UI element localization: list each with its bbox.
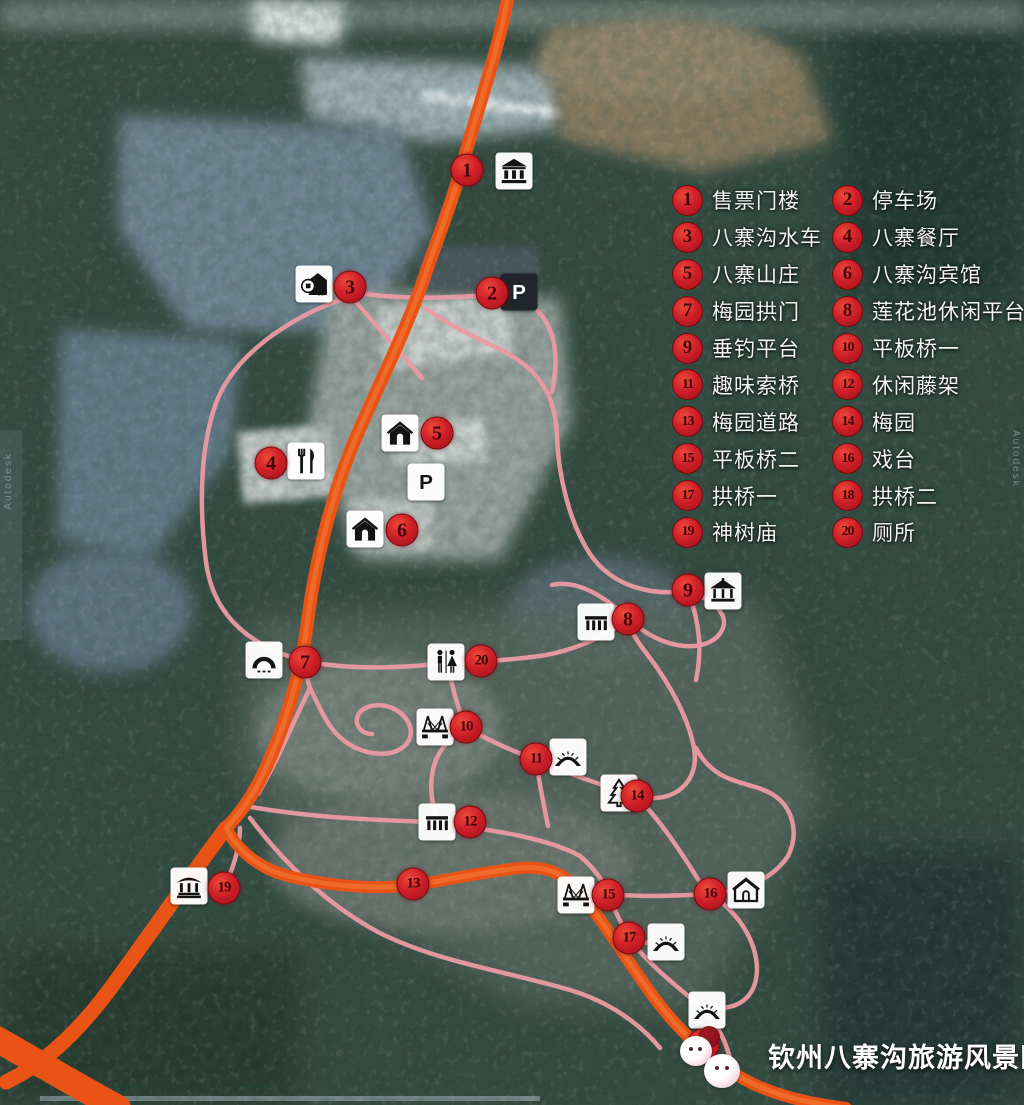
parking-light-icon: P [408, 464, 445, 501]
map-marker-number: 10 [460, 720, 473, 735]
legend-item-label: 八寨沟水车 [712, 222, 822, 252]
watermark-right: Autodesk [1010, 430, 1021, 488]
legend-item-label: 戏台 [872, 444, 916, 474]
legend-item-label: 休闲藤架 [872, 370, 960, 400]
map-marker-6: 6 [386, 514, 419, 547]
legend-item: 5八寨山庄 [672, 256, 824, 293]
map-marker-number: 7 [300, 652, 310, 672]
legend-item-number: 17 [672, 480, 703, 511]
pavilion-icon-glyph [708, 576, 739, 607]
house-icon-glyph [350, 514, 381, 545]
map-marker-20: 20 [465, 645, 498, 678]
map-marker-number: 8 [623, 609, 633, 629]
map-marker-number: 19 [218, 881, 231, 896]
legend-item-label: 售票门楼 [712, 185, 800, 215]
map-marker-number: 20 [475, 654, 488, 669]
temple-icon-glyph [174, 871, 205, 902]
legend-item-label: 八寨沟宾馆 [872, 259, 982, 289]
map-marker-13: 13 [397, 868, 430, 901]
map-marker-number: 13 [407, 877, 420, 892]
map-marker-8: 8 [612, 603, 645, 636]
legend-item-number: 18 [832, 480, 863, 511]
map-marker-3: 3 [334, 271, 367, 304]
legend-item-number: 7 [672, 296, 703, 327]
legend-item: 18拱桥二 [832, 477, 1024, 514]
legend-item: 1售票门楼 [672, 182, 824, 219]
house-icon-glyph [385, 418, 416, 449]
legend-item: 12休闲藤架 [832, 366, 1024, 403]
map-marker-number: 15 [602, 888, 615, 903]
legend-item-number: 11 [672, 369, 703, 400]
pavilion-icon [705, 573, 742, 610]
map-marker-number: 12 [464, 815, 477, 830]
gate-building-icon-glyph [499, 156, 530, 187]
legend-item-number: 19 [672, 517, 703, 548]
watermark-left: Autodesk [3, 452, 14, 510]
map-marker-4: 4 [255, 447, 288, 480]
legend-item: 16戏台 [832, 440, 1024, 477]
legend-item-number: 15 [672, 443, 703, 474]
arch-bridge-icon-glyph [692, 995, 723, 1026]
house-outline-icon [728, 872, 765, 909]
map-marker-number: 5 [432, 423, 442, 443]
legend-item-label: 趣味索桥 [712, 370, 800, 400]
legend-item-number: 4 [832, 222, 863, 253]
map-marker-5: 5 [421, 417, 454, 450]
legend-item-label: 拱桥二 [872, 481, 938, 511]
legend-item: 4八寨餐厅 [832, 219, 1024, 256]
map-marker-7: 7 [289, 646, 322, 679]
legend-item-label: 梅园道路 [712, 407, 800, 437]
legend-item: 17拱桥一 [672, 477, 824, 514]
legend-item: 7梅园拱门 [672, 293, 824, 330]
legend-item: 13梅园道路 [672, 403, 824, 440]
legend-item: 6八寨沟宾馆 [832, 256, 1024, 293]
legend-item-number: 9 [672, 333, 703, 364]
gate-building-icon [496, 153, 533, 190]
legend-item: 20厕所 [832, 514, 1024, 551]
restaurant-icon-glyph [291, 446, 322, 477]
map-marker-number: 4 [266, 453, 276, 473]
map-marker-15: 15 [592, 879, 625, 912]
legend-item-number: 16 [832, 443, 863, 474]
svg-text:P: P [512, 281, 526, 304]
arch-bridge-icon [648, 924, 685, 961]
mascot-figure [704, 1054, 740, 1088]
parking-light-icon-glyph: P [411, 467, 442, 498]
legend-item-label: 八寨餐厅 [872, 222, 960, 252]
map-marker-19: 19 [208, 872, 241, 905]
flat-bridge-icon-glyph [561, 880, 592, 911]
arch-bridge-icon [550, 739, 587, 776]
map-marker-16: 16 [694, 878, 727, 911]
legend-item-number: 1 [672, 185, 703, 216]
legend-item-number: 14 [832, 406, 863, 437]
map-marker-number: 14 [631, 789, 644, 804]
legend-item-number: 10 [832, 333, 863, 364]
map-marker-number: 16 [704, 887, 717, 902]
flat-bridge-icon-glyph [420, 712, 451, 743]
legend-item-number: 3 [672, 222, 703, 253]
map-marker-number: 17 [623, 931, 636, 946]
legend-item-label: 停车场 [872, 185, 938, 215]
platform-icon-glyph [581, 607, 612, 638]
platform-icon [578, 604, 615, 641]
water-wheel-icon-glyph [299, 269, 330, 300]
map-marker-number: 9 [683, 580, 693, 600]
legend-item-number: 6 [832, 259, 863, 290]
legend-item-label: 梅园拱门 [712, 296, 800, 326]
map-marker-17: 17 [613, 922, 646, 955]
legend-item-number: 5 [672, 259, 703, 290]
arch-bridge-icon-glyph [651, 927, 682, 958]
legend-item-label: 莲花池休闲平台 [872, 296, 1024, 326]
legend-item-label: 平板桥一 [872, 333, 960, 363]
flat-bridge-icon [417, 709, 454, 746]
map-marker-number: 2 [487, 283, 497, 303]
legend-item-number: 20 [832, 517, 863, 548]
legend-item-number: 13 [672, 406, 703, 437]
legend-item-label: 八寨山庄 [712, 259, 800, 289]
house-outline-icon-glyph [731, 875, 762, 906]
map-marker-10: 10 [450, 711, 483, 744]
map-marker-number: 1 [462, 160, 472, 180]
legend-item: 3八寨沟水车 [672, 219, 824, 256]
scenic-area-map: 1P234567891011121314151617181920P 1售票门楼2… [0, 0, 1024, 1105]
legend-item: 8莲花池休闲平台 [832, 293, 1024, 330]
arch-gate-icon-glyph [249, 645, 280, 676]
arch-gate-icon [246, 642, 283, 679]
map-marker-14: 14 [621, 780, 654, 813]
legend-item: 14梅园 [832, 403, 1024, 440]
toilet-icon-glyph [431, 647, 462, 678]
map-marker-2: 2 [476, 277, 509, 310]
flat-bridge-icon [558, 877, 595, 914]
legend-item-label: 平板桥二 [712, 444, 800, 474]
toilet-icon [428, 644, 465, 681]
house-icon [382, 415, 419, 452]
legend-item-number: 12 [832, 369, 863, 400]
mascot-logo [676, 1022, 760, 1102]
legend: 1售票门楼2停车场3八寨沟水车4八寨餐厅5八寨山庄6八寨沟宾馆7梅园拱门8莲花池… [672, 182, 1024, 551]
legend-item-label: 垂钓平台 [712, 333, 800, 363]
legend-item: 9垂钓平台 [672, 330, 824, 367]
restaurant-icon [288, 443, 325, 480]
legend-item-number: 8 [832, 296, 863, 327]
map-marker-number: 6 [397, 520, 407, 540]
legend-item-label: 神树庙 [712, 517, 778, 547]
legend-item: 2停车场 [832, 182, 1024, 219]
map-marker-11: 11 [520, 743, 553, 776]
map-marker-1: 1 [451, 154, 484, 187]
legend-item-number: 2 [832, 185, 863, 216]
legend-item: 11趣味索桥 [672, 366, 824, 403]
map-title: 钦州八寨沟旅游风景区 [768, 1036, 1024, 1075]
legend-item: 19神树庙 [672, 514, 824, 551]
map-marker-9: 9 [672, 574, 705, 607]
legend-item-label: 厕所 [872, 517, 916, 547]
map-marker-number: 11 [530, 752, 542, 767]
legend-item: 10平板桥一 [832, 330, 1024, 367]
legend-item-label: 拱桥一 [712, 481, 778, 511]
water-wheel-icon [296, 266, 333, 303]
arch-bridge-icon-glyph [553, 742, 584, 773]
map-marker-number: 3 [345, 277, 355, 297]
legend-item: 15平板桥二 [672, 440, 824, 477]
map-marker-12: 12 [454, 806, 487, 839]
temple-icon [171, 868, 208, 905]
platform-icon-glyph [422, 807, 453, 838]
svg-text:P: P [419, 471, 433, 494]
house-icon [347, 511, 384, 548]
legend-item-label: 梅园 [872, 407, 916, 437]
platform-icon [419, 804, 456, 841]
